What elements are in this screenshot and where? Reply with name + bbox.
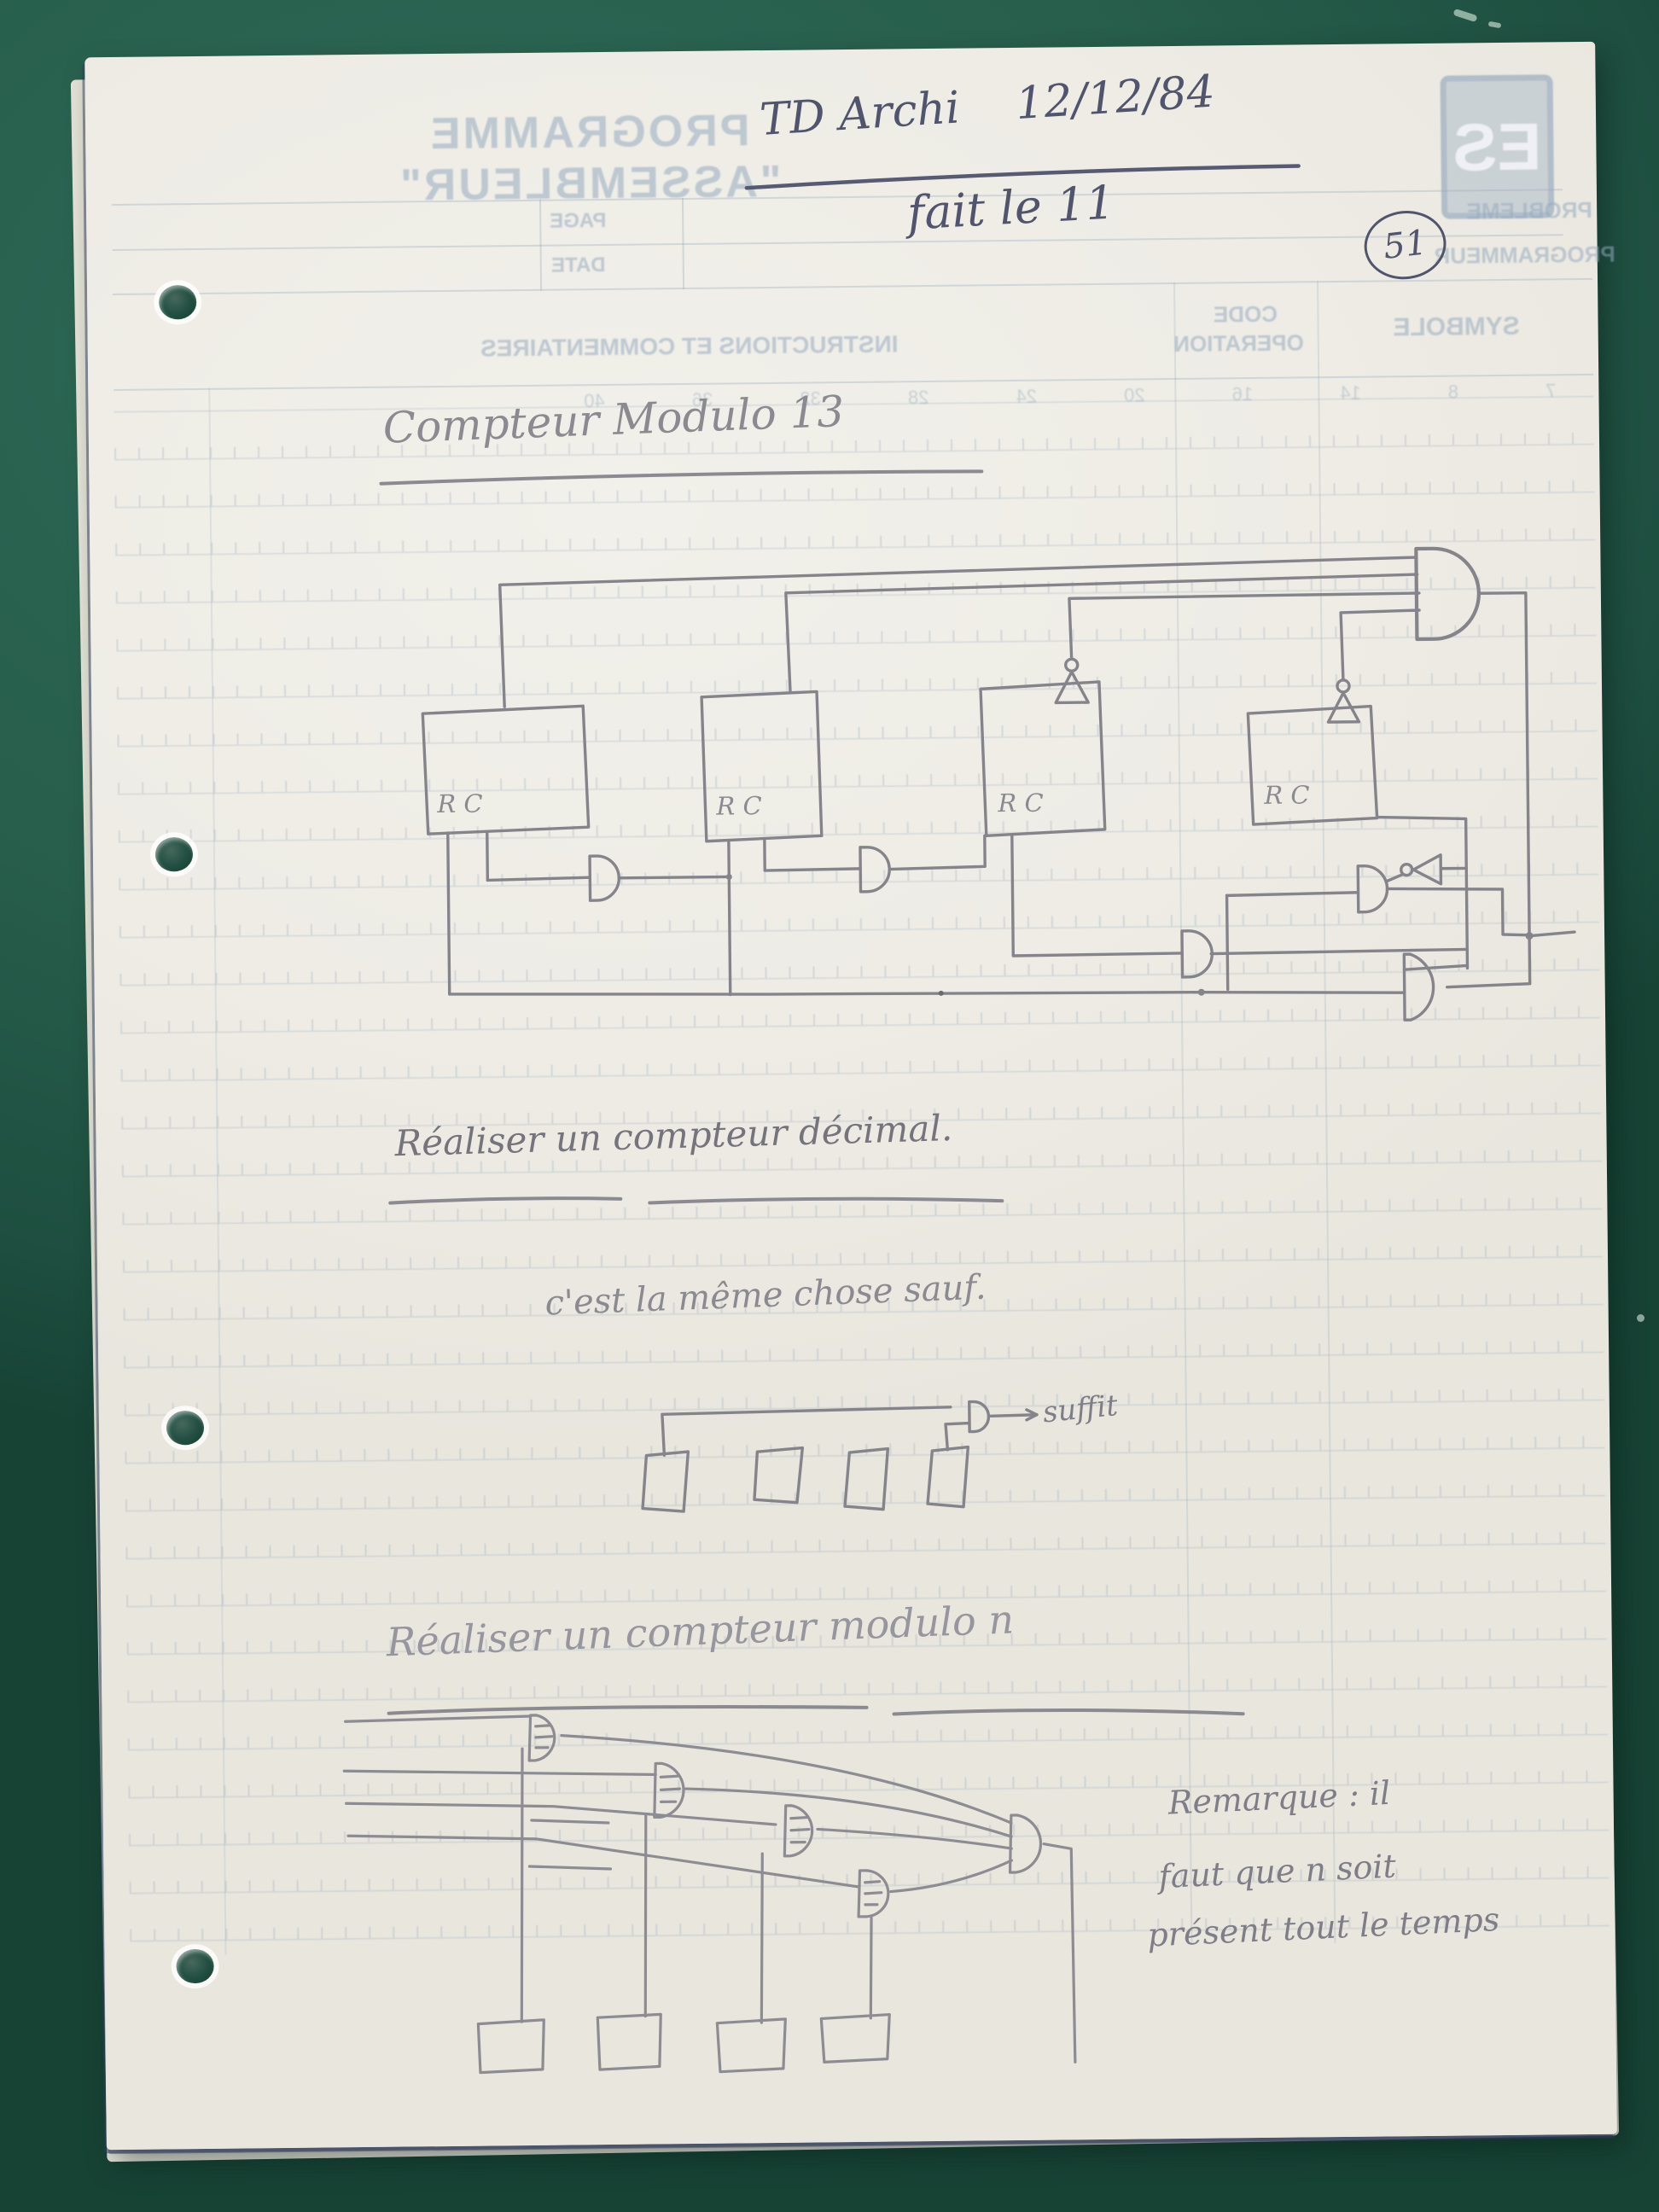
rc-box-label: R C <box>437 789 483 818</box>
pencil-underlines <box>375 469 1243 1723</box>
punch-hole <box>155 837 193 871</box>
page-number: 51 <box>1382 223 1429 267</box>
desk-scratch <box>1488 21 1502 29</box>
circuit-diagram-modulo-n <box>344 1709 1075 2075</box>
punch-hole <box>176 1949 213 1983</box>
handwritten-note: fait le 11 <box>906 175 1116 240</box>
photo-of-handwritten-notes: { "colors": { "desk_green": "#2a6452", "… <box>0 0 1659 2212</box>
punch-hole <box>159 285 196 319</box>
desk-scratch <box>1637 1314 1644 1322</box>
circuit-diagram-decimal <box>642 1401 1038 1512</box>
rc-box-label: R C <box>716 791 762 821</box>
sketches-layer <box>84 42 1617 2150</box>
suffit-label: suffit <box>1041 1388 1119 1429</box>
paper-sheet: ES PROGRAMME "ASSEMBLEUR" PROBLEME PAGE … <box>84 42 1617 2150</box>
desk-scratch <box>1452 9 1477 22</box>
rc-box-label: R C <box>1264 780 1310 810</box>
rc-box-label: R C <box>998 789 1044 818</box>
